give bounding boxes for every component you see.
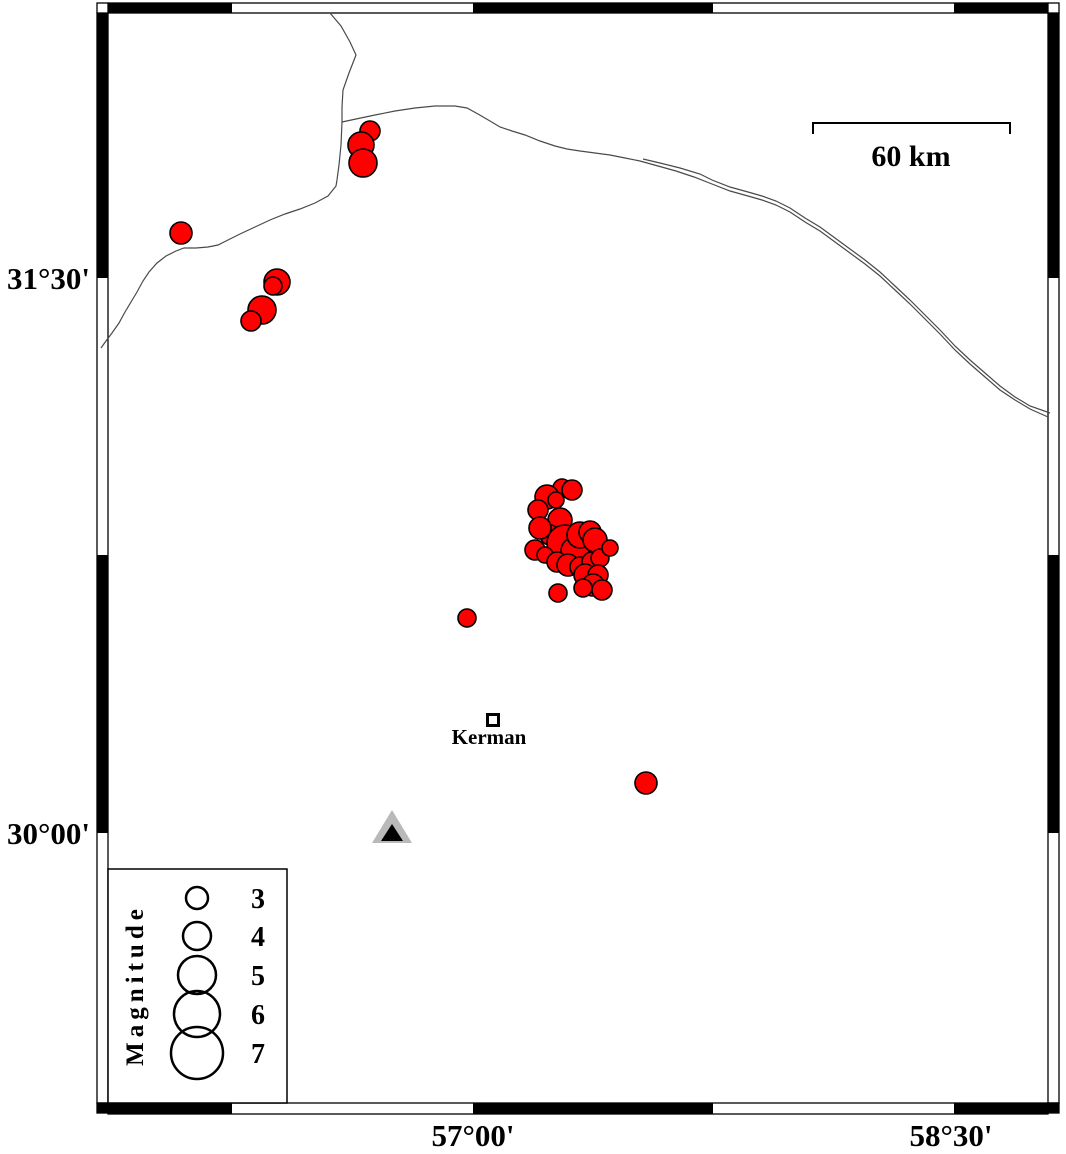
earthquake-epicenter: [574, 579, 592, 597]
earthquake-epicenter: [562, 480, 582, 500]
scale-bar: 60 km: [813, 123, 1010, 173]
earthquake-layer: [170, 121, 657, 794]
fault-line: [101, 13, 356, 348]
earthquake-epicenter: [458, 609, 476, 627]
earthquake-epicenter: [170, 222, 192, 244]
frame-segment: [954, 3, 1048, 13]
latitude-label: 30°00': [7, 816, 90, 851]
frame-corner: [97, 3, 108, 13]
earthquake-epicenter: [635, 772, 657, 794]
longitude-label: 58°30': [909, 1118, 992, 1153]
frame-segment: [473, 3, 713, 13]
frame-segment: [108, 1103, 232, 1114]
kerman-square-marker: [488, 715, 499, 726]
frame-segment: [97, 13, 108, 278]
fault-line: [640, 161, 1048, 417]
frame-corner: [1048, 1103, 1059, 1113]
station-marker-group: [372, 810, 412, 843]
frame-segment: [108, 3, 232, 13]
seismicity-map-figure: Kerman 60 km Magnitude 34567 31°30'30°00…: [0, 0, 1066, 1154]
map-canvas: Kerman 60 km Magnitude 34567 31°30'30°00…: [0, 0, 1066, 1154]
scale-bar-label: 60 km: [871, 140, 950, 173]
legend-title: Magnitude: [122, 904, 149, 1066]
legend-magnitude-label: 7: [251, 1039, 265, 1070]
frame-segment: [954, 1103, 1048, 1114]
magnitude-legend: Magnitude 34567: [108, 869, 287, 1103]
legend-magnitude-label: 6: [251, 1000, 265, 1031]
frame-corner: [1048, 3, 1059, 13]
latitude-label: 31°30': [7, 261, 90, 296]
earthquake-epicenter: [549, 584, 567, 602]
earthquake-epicenter: [602, 540, 618, 556]
scale-bar-bracket: [813, 123, 1010, 134]
kerman-label: Kerman: [452, 725, 527, 749]
fault-line: [342, 106, 640, 161]
longitude-label: 57°00': [431, 1118, 514, 1153]
fault-lines-layer: [101, 13, 1050, 417]
legend-magnitude-label: 4: [251, 922, 265, 953]
frame-segment: [97, 555, 108, 833]
frame-segment: [473, 1103, 713, 1114]
city-kerman: Kerman: [452, 715, 527, 750]
frame-segment: [1048, 13, 1059, 278]
earthquake-epicenter: [264, 277, 282, 295]
frame-segment: [1048, 555, 1059, 833]
earthquake-epicenter: [548, 492, 564, 508]
legend-magnitude-label: 5: [251, 961, 265, 992]
frame-corner: [97, 1103, 108, 1113]
legend-magnitude-label: 3: [251, 884, 265, 915]
earthquake-epicenter: [241, 311, 261, 331]
earthquake-epicenter: [349, 149, 377, 177]
earthquake-epicenter: [592, 580, 612, 600]
fault-line: [643, 159, 1050, 413]
